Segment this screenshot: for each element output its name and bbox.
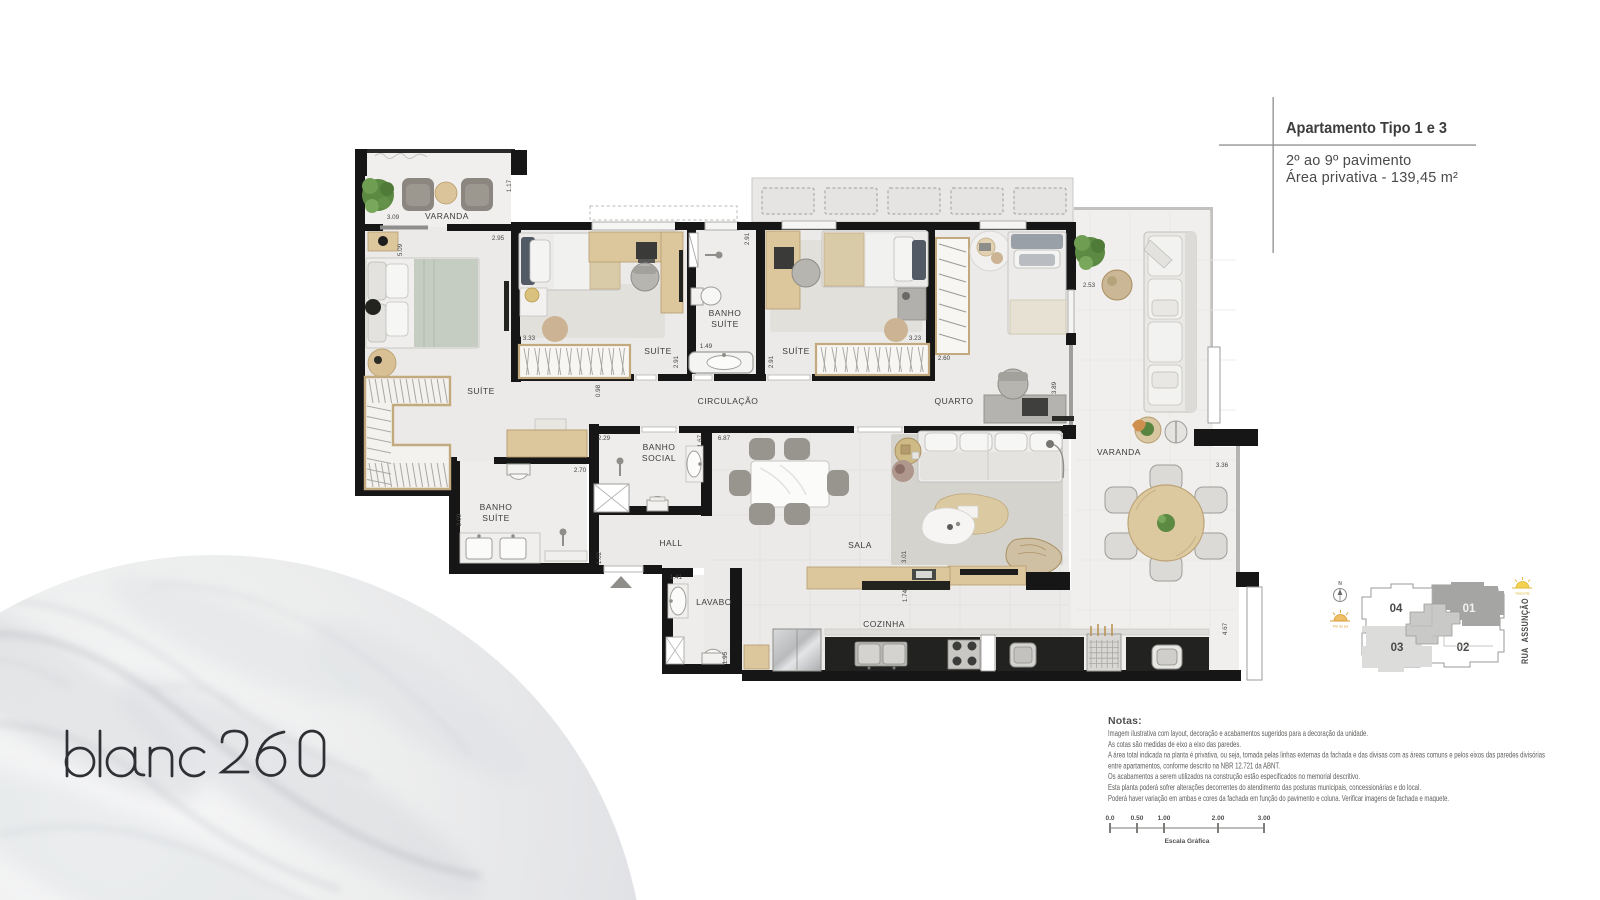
svg-text:BANHO: BANHO [709, 308, 742, 318]
svg-text:VARANDA: VARANDA [1097, 447, 1141, 457]
svg-text:Apartamento Tipo 1 e 3: Apartamento Tipo 1 e 3 [1286, 120, 1447, 137]
svg-text:Notas:: Notas: [1108, 715, 1142, 727]
svg-text:Esta planta poderá sofrer alte: Esta planta poderá sofrer alterações dec… [1108, 782, 1421, 792]
svg-text:01: 01 [1463, 603, 1476, 615]
svg-text:3.01: 3.01 [901, 550, 908, 563]
svg-text:QUARTO: QUARTO [934, 396, 973, 406]
svg-text:RUA ASSUNÇÃO: RUA ASSUNÇÃO [1520, 598, 1531, 664]
svg-text:Escala Gráfica: Escala Gráfica [1165, 838, 1210, 845]
svg-text:2º ao 9º pavimento: 2º ao 9º pavimento [1286, 153, 1411, 169]
svg-text:Área privativa - 139,45 m²: Área privativa - 139,45 m² [1286, 169, 1458, 186]
svg-text:4.67: 4.67 [1222, 622, 1229, 635]
svg-text:2.53: 2.53 [1083, 282, 1096, 289]
svg-text:03: 03 [1391, 642, 1404, 654]
svg-text:2.00: 2.00 [1212, 815, 1225, 822]
svg-text:entre apartamentos, conforme d: entre apartamentos, conforme descrito na… [1108, 760, 1280, 770]
svg-text:1.41: 1.41 [670, 574, 683, 581]
svg-text:3.89: 3.89 [1051, 381, 1058, 394]
svg-text:2.29: 2.29 [598, 435, 611, 442]
svg-text:6.87: 6.87 [718, 435, 731, 442]
svg-text:1.17: 1.17 [506, 179, 513, 192]
svg-text:0.50: 0.50 [1131, 815, 1144, 822]
svg-text:1.95: 1.95 [722, 651, 729, 664]
svg-text:1.02: 1.02 [596, 551, 603, 564]
svg-text:N: N [1338, 581, 1342, 587]
svg-text:1.74: 1.74 [902, 589, 909, 602]
svg-text:3.36: 3.36 [1216, 462, 1229, 469]
svg-text:SUÍTE: SUÍTE [482, 513, 510, 523]
svg-text:Imagem ilustrativa com layout,: Imagem ilustrativa com layout, decoração… [1108, 728, 1368, 738]
svg-text:1.67: 1.67 [697, 434, 704, 447]
svg-text:2.70: 2.70 [574, 467, 587, 474]
svg-text:04: 04 [1390, 603, 1403, 615]
svg-text:Nascente: Nascente [1515, 592, 1529, 596]
svg-text:BANHO: BANHO [643, 442, 676, 452]
svg-text:5.09: 5.09 [397, 243, 404, 256]
svg-text:2.60: 2.60 [938, 355, 951, 362]
svg-text:As cotas são medidas de eixo a: As cotas são medidas de eixo a eixo das … [1108, 739, 1241, 749]
svg-text:0.98: 0.98 [595, 384, 602, 397]
svg-text:3.23: 3.23 [909, 335, 922, 342]
svg-text:VARANDA: VARANDA [425, 211, 469, 221]
svg-text:1.49: 1.49 [700, 343, 713, 350]
svg-text:3.33: 3.33 [523, 335, 536, 342]
svg-text:Poderá haver variação em ambas: Poderá haver variação em ambas e cores d… [1108, 793, 1449, 803]
svg-text:SUÍTE: SUÍTE [782, 346, 810, 356]
svg-text:HALL: HALL [659, 538, 682, 548]
svg-text:SOCIAL: SOCIAL [642, 453, 676, 463]
svg-text:3.00: 3.00 [1258, 815, 1271, 822]
svg-text:02: 02 [1457, 642, 1470, 654]
svg-text:3.09: 3.09 [387, 214, 400, 221]
svg-text:2.95: 2.95 [492, 235, 505, 242]
svg-text:2.91: 2.91 [744, 232, 751, 245]
svg-text:SUÍTE: SUÍTE [711, 319, 739, 329]
svg-text:2.91: 2.91 [768, 355, 775, 368]
svg-text:1.00: 1.00 [1158, 815, 1171, 822]
svg-text:BANHO: BANHO [480, 502, 513, 512]
svg-text:COZINHA: COZINHA [863, 619, 905, 629]
svg-text:SUÍTE: SUÍTE [644, 346, 672, 356]
svg-text:2.91: 2.91 [673, 355, 680, 368]
svg-text:0.0: 0.0 [1105, 815, 1114, 822]
svg-text:LAVABO: LAVABO [696, 597, 732, 607]
svg-text:CIRCULAÇÃO: CIRCULAÇÃO [698, 396, 759, 406]
svg-text:Os acabamentos a serem utiliza: Os acabamentos a serem utilizados na con… [1108, 771, 1360, 781]
svg-text:Pôr do sol: Pôr do sol [1333, 625, 1349, 629]
svg-text:A área total indicada na plant: A área total indicada na planta é privat… [1108, 750, 1545, 760]
svg-text:SUÍTE: SUÍTE [467, 386, 495, 396]
svg-text:SALA: SALA [848, 540, 872, 550]
svg-text:2.09: 2.09 [456, 513, 463, 526]
